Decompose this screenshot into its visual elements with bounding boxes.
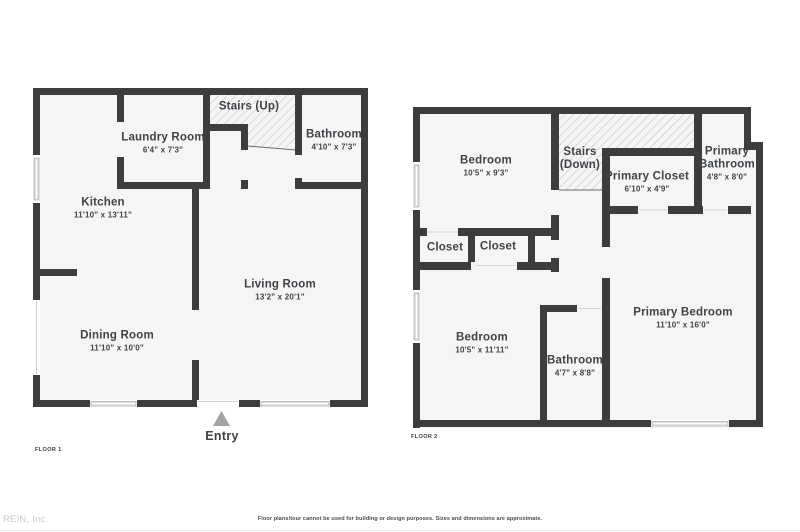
floor2-sheet-label: FLOOR 2 [411, 434, 438, 440]
floor-plan-drawing [0, 0, 800, 532]
floor1-plan [33, 88, 368, 426]
bottom-divider [0, 530, 800, 531]
floor1-sheet-label: FLOOR 1 [35, 447, 62, 453]
floor1-floor-area [33, 88, 368, 407]
entry-direction-icon [213, 411, 230, 426]
entry-label: Entry [205, 429, 238, 443]
floor2-plan [413, 107, 763, 428]
disclaimer-text: Floor plans/tour cannot be used for buil… [0, 516, 800, 522]
floor-plan-sheet: Laundry Room 6'4" x 7'3" Stairs (Up) Bat… [0, 0, 800, 532]
